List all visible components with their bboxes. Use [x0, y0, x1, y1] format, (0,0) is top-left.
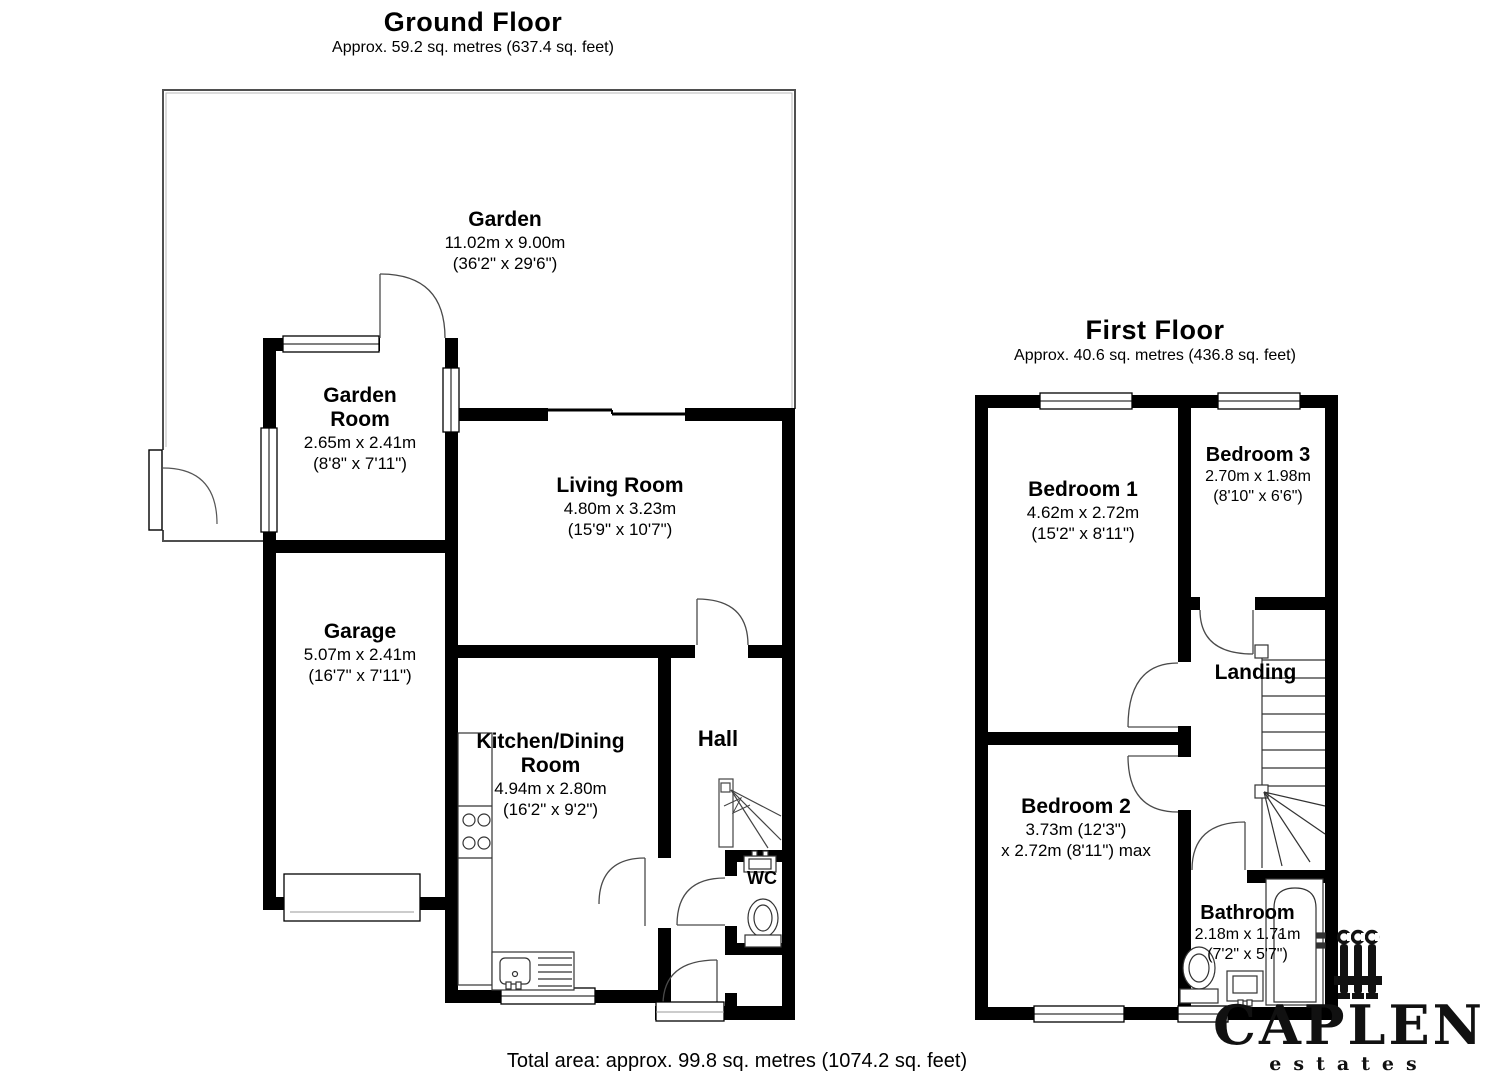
room-name: Hall [668, 727, 768, 751]
floorplan-page: Ground Floor Approx. 59.2 sq. metres (63… [0, 0, 1485, 1080]
room-dims: (7'2" x 5'7") [1170, 945, 1325, 965]
ground-floor-subtitle: Approx. 59.2 sq. metres (637.4 sq. feet) [173, 39, 773, 57]
room-dims: (16'2" x 9'2") [458, 799, 643, 820]
room-dims: (8'8" x 7'11") [297, 453, 423, 474]
logo-name: CAPLEN [1213, 993, 1485, 1057]
room-dims: 3.73m (12'3") [970, 819, 1182, 840]
room-label-living-room: Living Room 4.80m x 3.23m (15'9" x 10'7"… [545, 474, 695, 540]
room-label-bedroom3: Bedroom 3 2.70m x 1.98m (8'10" x 6'6") [1190, 443, 1326, 507]
room-label-bedroom2: Bedroom 2 3.73m (12'3") x 2.72m (8'11") … [970, 795, 1182, 861]
room-dims: (15'2" x 8'11") [983, 523, 1183, 544]
room-dims: 2.65m x 2.41m [297, 432, 423, 453]
garage-door [284, 874, 420, 921]
logo-tagline: estates [1213, 1053, 1485, 1075]
room-dims: 11.02m x 9.00m [355, 232, 655, 253]
first-floor-title: First Floor [905, 315, 1405, 346]
room-name: Living Room [545, 474, 695, 498]
room-label-kitchen: Kitchen/Dining Room 4.94m x 2.80m (16'2"… [458, 730, 643, 820]
room-dims: 2.70m x 1.98m [1190, 467, 1326, 487]
room-label-garden: Garden 11.02m x 9.00m (36'2" x 29'6") [355, 208, 655, 274]
room-label-hall: Hall [668, 727, 768, 751]
room-name: Garage [262, 620, 458, 644]
caplen-logo-icon [1334, 932, 1382, 1000]
room-name: Bedroom 1 [983, 478, 1183, 502]
room-dims: 4.80m x 3.23m [545, 498, 695, 519]
room-name: Bedroom 2 [970, 795, 1182, 819]
room-label-garage: Garage 5.07m x 2.41m (16'7" x 7'11") [262, 620, 458, 686]
room-label-landing: Landing [1183, 661, 1328, 685]
room-dims: x 2.72m (8'11") max [970, 840, 1182, 861]
room-name: Landing [1183, 661, 1328, 685]
hall-staircase [719, 779, 781, 848]
room-label-bathroom: Bathroom 2.18m x 1.71m (7'2" x 5'7") [1170, 901, 1325, 965]
room-name: Bedroom 3 [1190, 443, 1326, 467]
room-label-garden-room: Garden Room 2.65m x 2.41m (8'8" x 7'11") [297, 384, 423, 474]
room-name: Bathroom [1170, 901, 1325, 925]
first-floor-subtitle: Approx. 40.6 sq. metres (436.8 sq. feet) [905, 347, 1405, 365]
patio-door-line [548, 410, 685, 414]
garden-gate-swing [163, 468, 217, 524]
room-dims: (15'9" x 10'7") [545, 519, 695, 540]
room-dims: (36'2" x 29'6") [355, 253, 655, 274]
room-dims: 4.62m x 2.72m [983, 502, 1183, 523]
room-dims: 5.07m x 2.41m [262, 644, 458, 665]
ground-floor-title: Ground Floor [173, 7, 773, 38]
room-label-wc: WC [735, 866, 789, 890]
room-dims: (16'7" x 7'11") [262, 665, 458, 686]
garden-boundary [149, 90, 795, 541]
room-label-bedroom1: Bedroom 1 4.62m x 2.72m (15'2" x 8'11") [983, 478, 1183, 544]
garden-gate [149, 450, 162, 530]
room-dims: 4.94m x 2.80m [458, 778, 643, 799]
room-dims: (8'10" x 6'6") [1190, 487, 1326, 507]
room-name: Kitchen/Dining Room [458, 730, 643, 778]
room-name: Garden [355, 208, 655, 232]
room-name: Garden Room [297, 384, 423, 432]
total-area-text: Total area: approx. 99.8 sq. metres (107… [337, 1050, 1137, 1073]
room-dims: 2.18m x 1.71m [1170, 925, 1325, 945]
room-name: WC [735, 866, 789, 890]
